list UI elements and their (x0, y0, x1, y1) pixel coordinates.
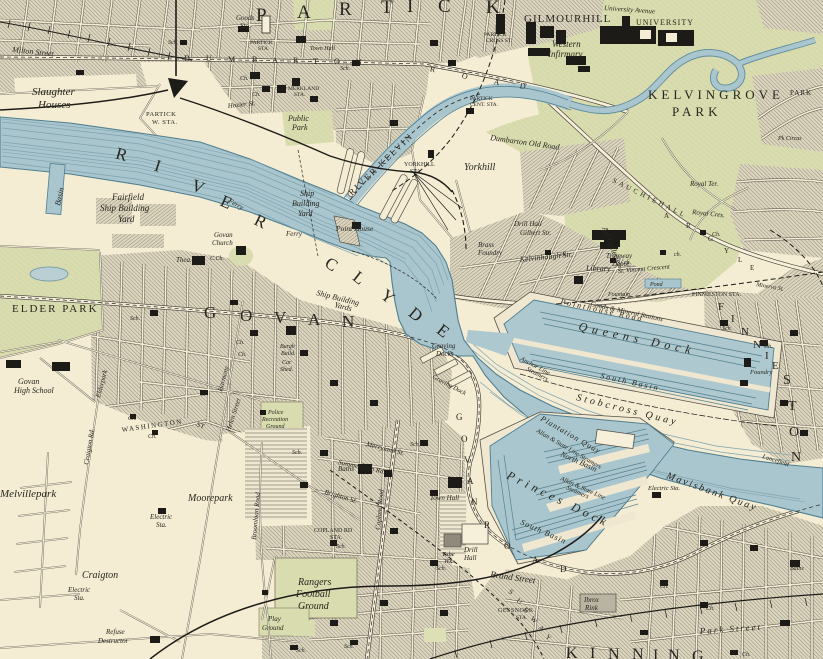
svg-text:E: E (750, 264, 754, 272)
svg-text:R: R (293, 56, 299, 65)
svg-text:STA.: STA. (294, 92, 306, 98)
svg-text:STA.: STA. (258, 46, 270, 52)
svg-text:N: N (791, 450, 801, 465)
svg-text:Electric: Electric (149, 513, 173, 521)
svg-text:Sch.: Sch. (722, 326, 732, 332)
svg-text:KELVINGROVE: KELVINGROVE (648, 87, 784, 102)
svg-text:M: M (228, 55, 235, 64)
svg-text:S: S (783, 373, 791, 388)
svg-text:Library: Library (585, 264, 611, 273)
svg-text:Park: Park (291, 123, 308, 132)
svg-text:O: O (789, 425, 799, 440)
svg-text:Govan: Govan (18, 377, 39, 386)
svg-text:Rangers: Rangers (297, 577, 331, 588)
svg-text:Ferry: Ferry (285, 230, 303, 238)
svg-text:YORKHILL: YORKHILL (404, 162, 435, 168)
svg-text:Yard: Yard (298, 209, 314, 218)
svg-text:Govan: Govan (214, 231, 233, 239)
svg-text:Ship: Ship (300, 189, 314, 198)
svg-text:A: A (272, 56, 278, 65)
svg-text:Ch.: Ch. (252, 92, 261, 98)
svg-text:CROSS ST.: CROSS ST. (486, 38, 513, 44)
svg-text:R: R (484, 520, 490, 530)
svg-text:Building: Building (292, 199, 320, 208)
svg-text:K: K (486, 0, 500, 18)
svg-text:Electric: Electric (67, 586, 91, 594)
svg-text:Moorepark: Moorepark (187, 493, 233, 504)
svg-text:C.Ch.: C.Ch. (210, 256, 224, 262)
svg-text:Public: Public (287, 114, 309, 123)
svg-text:Sch.: Sch. (436, 566, 446, 572)
svg-text:ELDER PARK: ELDER PARK (12, 303, 99, 315)
svg-text:Ground: Ground (298, 601, 330, 612)
svg-text:D: D (560, 564, 567, 574)
svg-text:Tramway: Tramway (606, 252, 633, 260)
svg-text:ch.: ch. (560, 252, 567, 258)
svg-text:Graving: Graving (432, 342, 456, 350)
svg-text:COPLAND RD: COPLAND RD (314, 528, 353, 534)
svg-text:V: V (274, 308, 287, 327)
svg-text:Ch.: Ch. (238, 352, 247, 358)
svg-text:Craigton: Craigton (82, 570, 118, 581)
svg-text:N: N (668, 647, 680, 659)
svg-text:Ibrox: Ibrox (583, 596, 600, 604)
svg-text:Western: Western (552, 39, 581, 49)
svg-text:Brass: Brass (478, 241, 494, 249)
svg-text:C: C (438, 0, 451, 17)
svg-text:Ground: Ground (262, 624, 284, 632)
svg-text:GILMOURHILL: GILMOURHILL (524, 13, 611, 25)
svg-text:UNIVERSITY: UNIVERSITY (636, 18, 694, 27)
svg-text:V: V (464, 455, 471, 465)
svg-text:Thea.: Thea. (176, 256, 192, 264)
svg-text:N: N (356, 58, 362, 67)
svg-text:Sch.: Sch. (410, 442, 420, 448)
svg-text:Town Hall: Town Hall (310, 46, 335, 52)
svg-text:N: N (471, 497, 478, 507)
svg-text:Ch.: Ch. (148, 434, 157, 440)
svg-text:Ch.: Ch. (660, 584, 669, 590)
svg-text:Wks: Wks (444, 558, 455, 565)
svg-text:T: T (381, 0, 393, 18)
svg-text:U: U (206, 54, 212, 63)
svg-text:I: I (653, 647, 658, 659)
svg-text:STA.: STA. (410, 169, 423, 175)
svg-text:FINNIESTON STA.: FINNIESTON STA. (692, 292, 742, 298)
svg-text:Yard: Yard (118, 214, 135, 224)
svg-text:High School: High School (13, 386, 55, 395)
svg-text:Shed.: Shed. (280, 367, 293, 373)
svg-text:Recreation: Recreation (261, 417, 288, 423)
svg-text:Hall: Hall (463, 554, 477, 562)
svg-text:E: E (772, 360, 779, 372)
svg-text:PARK: PARK (790, 89, 812, 97)
svg-text:Sta.: Sta. (74, 594, 85, 602)
svg-text:G: G (456, 412, 463, 422)
svg-text:N: N (632, 646, 644, 659)
svg-text:Infirmary: Infirmary (547, 49, 583, 59)
svg-text:R: R (686, 222, 691, 230)
svg-text:O: O (504, 541, 511, 551)
svg-text:B: B (252, 55, 257, 64)
svg-text:Build.: Build. (281, 351, 296, 357)
svg-text:N: N (741, 326, 749, 338)
svg-text:Point House: Point House (335, 224, 374, 233)
svg-text:N: N (753, 339, 761, 351)
svg-text:Sch.: Sch. (344, 644, 354, 650)
svg-text:Y: Y (724, 247, 729, 255)
svg-text:Yorkhill: Yorkhill (464, 162, 496, 173)
svg-text:STA.: STA. (330, 535, 343, 541)
svg-text:I: I (590, 645, 595, 659)
svg-text:Sch.: Sch. (336, 544, 346, 550)
svg-text:Pond: Pond (649, 282, 664, 288)
svg-text:Town Hall: Town Hall (430, 494, 459, 502)
svg-text:Church: Church (212, 239, 233, 247)
svg-text:PARTICK: PARTICK (146, 111, 176, 118)
svg-text:CENT. STA.: CENT. STA. (470, 102, 499, 108)
svg-text:I: I (407, 0, 413, 17)
svg-text:Refuse: Refuse (105, 628, 125, 636)
svg-text:Docks: Docks (435, 350, 454, 358)
svg-text:R: R (339, 0, 352, 20)
svg-text:L: L (738, 256, 742, 264)
svg-text:Ch.: Ch. (742, 652, 751, 658)
svg-text:I: I (731, 313, 735, 325)
svg-text:Rink: Rink (584, 604, 599, 612)
svg-text:P: P (256, 5, 267, 26)
svg-text:T: T (313, 57, 318, 66)
svg-text:Ch.: Ch. (128, 416, 137, 422)
svg-text:Police: Police (267, 410, 284, 416)
svg-text:D: D (184, 54, 190, 63)
svg-text:ch.: ch. (624, 260, 631, 266)
svg-text:Sch.: Sch. (168, 40, 178, 46)
svg-text:Ch.: Ch. (240, 76, 249, 82)
svg-text:Football: Football (295, 589, 331, 600)
svg-text:Baths: Baths (790, 566, 804, 572)
svg-text:PARK: PARK (672, 104, 721, 119)
svg-text:ch.: ch. (674, 252, 681, 258)
svg-text:Slaughter: Slaughter (32, 86, 75, 98)
svg-text:Foundry: Foundry (749, 369, 773, 376)
svg-text:O: O (334, 57, 340, 66)
svg-text:G: G (204, 303, 216, 322)
svg-text:Houses: Houses (37, 99, 70, 111)
svg-text:O: O (240, 306, 252, 325)
svg-text:Electric Sta.: Electric Sta. (647, 485, 681, 492)
svg-text:Play: Play (267, 615, 282, 623)
svg-text:Ground: Ground (266, 424, 285, 430)
svg-text:Sch.: Sch. (340, 66, 350, 72)
svg-text:Burgh: Burgh (280, 344, 295, 350)
svg-text:N: N (608, 646, 620, 659)
svg-text:Melvillepark: Melvillepark (0, 488, 57, 500)
svg-text:Sch.: Sch. (292, 450, 302, 456)
svg-text:T: T (788, 399, 797, 414)
svg-text:Baths: Baths (338, 465, 354, 473)
svg-text:Drill: Drill (463, 546, 478, 554)
svg-text:Destructor: Destructor (97, 637, 129, 645)
svg-text:A: A (532, 555, 539, 565)
svg-text:A: A (308, 310, 321, 329)
svg-text:G: G (692, 648, 704, 659)
svg-text:N: N (342, 312, 354, 331)
svg-text:Goods: Goods (236, 14, 255, 22)
svg-text:Ch.: Ch. (236, 340, 245, 346)
svg-text:A: A (297, 2, 311, 23)
svg-text:GESSNOCK: GESSNOCK (498, 608, 534, 614)
svg-text:STA.: STA. (516, 615, 528, 621)
svg-text:Sta.: Sta. (240, 22, 251, 30)
svg-text:Sch.: Sch. (130, 316, 140, 322)
svg-text:A: A (664, 212, 669, 220)
svg-text:Fountain: Fountain (607, 292, 630, 298)
svg-text:Ch.: Ch. (706, 606, 715, 612)
svg-text:Royal Ter.: Royal Ter. (689, 180, 718, 188)
svg-text:Foundry: Foundry (477, 249, 503, 257)
svg-text:F: F (718, 301, 724, 313)
svg-text:K: K (566, 645, 578, 659)
svg-text:Sch.: Sch. (296, 648, 306, 654)
svg-text:Ship Building: Ship Building (100, 203, 150, 213)
svg-text:Fairfield: Fairfield (111, 192, 144, 202)
svg-text:Sta.: Sta. (156, 521, 167, 529)
svg-text:W. STA.: W. STA. (152, 119, 178, 126)
svg-text:Tube: Tube (442, 551, 455, 558)
svg-text:I: I (765, 350, 769, 362)
svg-text:Ch.: Ch. (712, 232, 721, 238)
svg-text:Pk Circus: Pk Circus (777, 136, 802, 142)
svg-text:A: A (467, 476, 474, 486)
svg-text:Gilbert Str.: Gilbert Str. (520, 229, 551, 237)
svg-text:Ch.: Ch. (764, 344, 773, 350)
svg-text:Car: Car (282, 360, 292, 366)
svg-text:Drill Hall: Drill Hall (513, 220, 542, 228)
svg-text:O: O (461, 434, 468, 444)
